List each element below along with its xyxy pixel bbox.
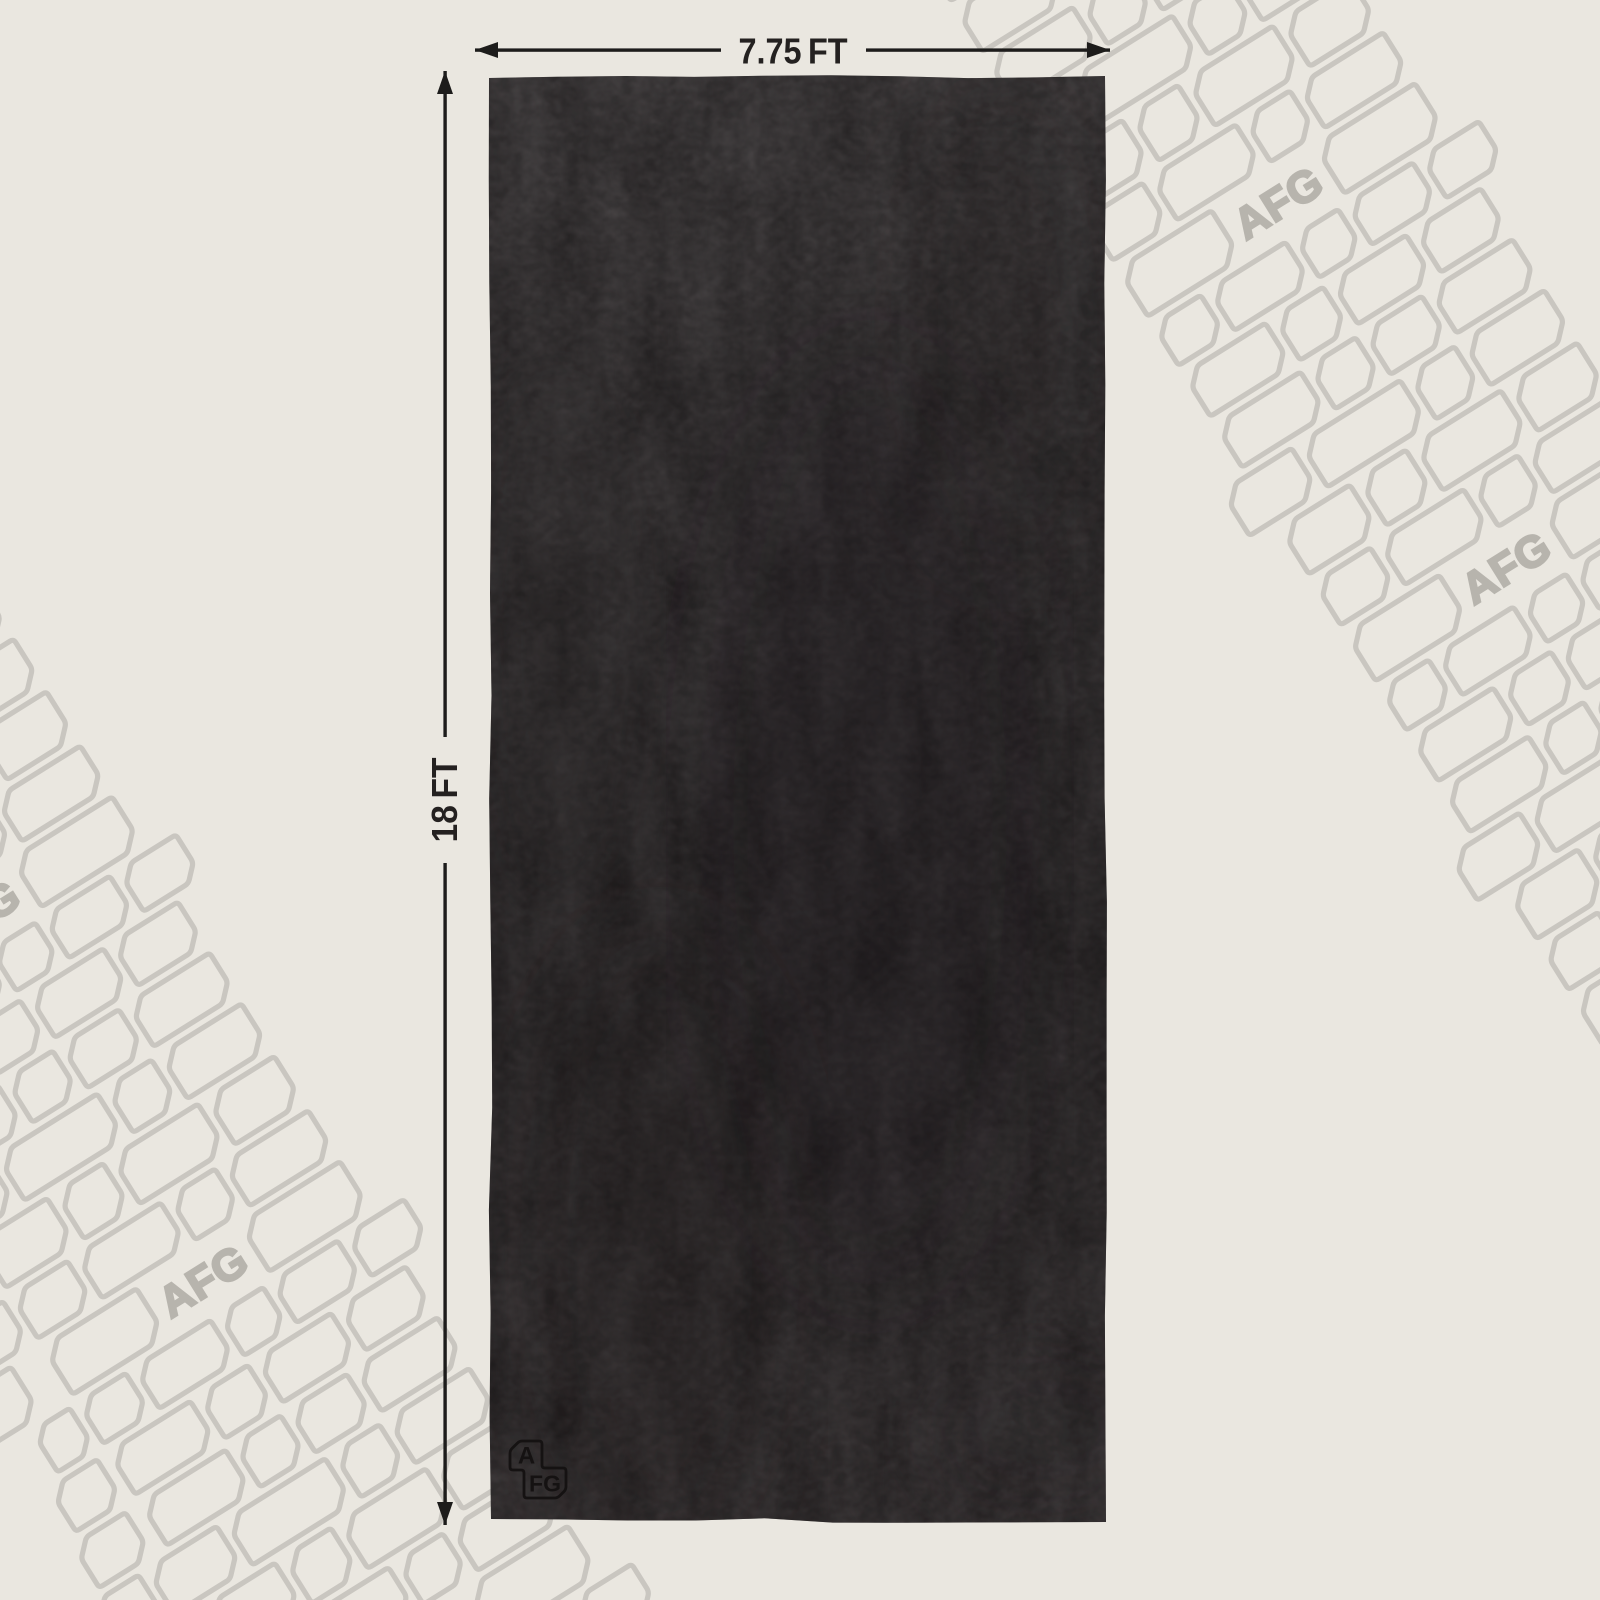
- svg-text:18 FT: 18 FT: [426, 758, 465, 843]
- svg-text:FG: FG: [529, 1471, 561, 1497]
- svg-text:7.75 FT: 7.75 FT: [738, 32, 847, 72]
- svg-text:A: A: [518, 1443, 535, 1470]
